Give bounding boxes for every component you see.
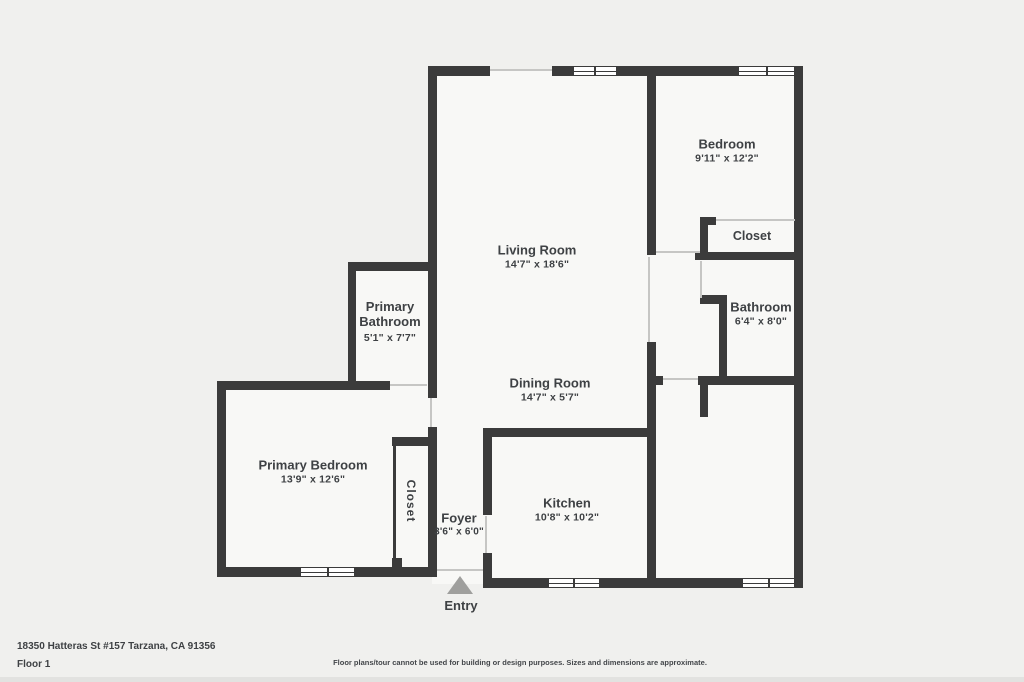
room-label-foyer: Foyer 3'6" x 6'0"	[434, 511, 484, 540]
wall	[695, 252, 803, 260]
entry-label-text: Entry	[444, 598, 477, 614]
wall	[600, 578, 742, 588]
door-opening	[700, 261, 702, 298]
room-label-kitchen: Kitchen 10'8" x 10'2"	[535, 495, 599, 524]
room-dims: 9'11" x 12'2"	[695, 153, 759, 166]
door-opening	[430, 398, 432, 427]
wall	[483, 428, 656, 437]
door-opening	[663, 378, 698, 380]
room-dims: 3'6" x 6'0"	[434, 527, 484, 540]
wall	[647, 342, 656, 588]
entry-opening	[437, 569, 483, 571]
wall	[483, 578, 548, 588]
door-opening	[390, 384, 427, 386]
wall	[392, 437, 434, 446]
room-name: Dining Room	[510, 375, 591, 391]
wall	[428, 66, 437, 398]
room-name: Primary Bedroom	[258, 457, 367, 473]
wall	[217, 381, 390, 390]
wall-opening	[490, 69, 552, 71]
bottom-edge-strip	[0, 677, 1024, 682]
wall	[700, 217, 716, 225]
room-label-primary-bathroom: Primary Bathroom 5'1" x 7'7"	[344, 299, 436, 345]
room-dims: 14'7" x 18'6"	[498, 259, 577, 272]
room-label-bedroom1: Bedroom 9'11" x 12'2"	[695, 136, 759, 165]
wall	[656, 376, 663, 385]
room-label-dining: Dining Room 14'7" x 5'7"	[510, 375, 591, 404]
room-name: Kitchen	[535, 495, 599, 511]
wall	[719, 304, 727, 378]
entry-label: Entry	[444, 598, 477, 614]
room-dims: 5'1" x 7'7"	[344, 332, 436, 345]
room-name: Bathroom	[730, 299, 791, 315]
wall	[700, 385, 708, 417]
room-dims: 13'9" x 12'6"	[258, 474, 367, 487]
window	[738, 66, 795, 76]
room-name: Primary Bathroom	[344, 299, 436, 330]
wall	[392, 558, 402, 572]
room-label-living: Living Room 14'7" x 18'6"	[498, 242, 577, 271]
wall	[348, 262, 437, 271]
wall	[217, 567, 300, 577]
room-label-bathroom: Bathroom 6'4" x 8'0"	[730, 299, 791, 328]
wall	[698, 376, 803, 385]
wall	[428, 66, 490, 76]
floorplan-canvas: Living Room 14'7" x 18'6" Bedroom 9'11" …	[0, 0, 1024, 682]
room-dims: 10'8" x 10'2"	[535, 512, 599, 525]
room-label-closet2: Closet	[404, 480, 418, 523]
room-label-primary-bedroom: Primary Bedroom 13'9" x 12'6"	[258, 457, 367, 486]
wall	[617, 66, 738, 76]
window	[742, 578, 795, 588]
room-dims: 6'4" x 8'0"	[730, 316, 791, 329]
wall	[483, 553, 492, 588]
wall	[483, 428, 492, 515]
window	[300, 567, 355, 577]
room-name: Living Room	[498, 242, 577, 258]
room-name: Foyer	[434, 511, 484, 527]
room-label-closet1: Closet	[733, 229, 771, 245]
entry-arrow-icon	[447, 576, 473, 594]
room-name: Closet	[733, 229, 771, 245]
wall	[217, 381, 226, 577]
door-opening	[656, 251, 700, 253]
floor-number-text: Floor 1	[17, 659, 50, 670]
wall-opening	[648, 257, 650, 342]
window	[548, 578, 600, 588]
closet-opening	[716, 219, 795, 221]
disclaimer-text: Floor plans/tour cannot be used for buil…	[333, 658, 707, 667]
room-name: Bedroom	[695, 136, 759, 152]
wall	[647, 66, 656, 255]
wall	[795, 578, 803, 588]
window	[573, 66, 617, 76]
closet-front-line	[393, 446, 396, 558]
wall	[552, 66, 573, 76]
door-opening	[485, 516, 487, 553]
wall	[428, 427, 437, 577]
wall	[794, 66, 803, 588]
wall	[700, 295, 727, 304]
room-dims: 14'7" x 5'7"	[510, 392, 591, 405]
address-text: 18350 Hatteras St #157 Tarzana, CA 91356	[17, 641, 215, 652]
